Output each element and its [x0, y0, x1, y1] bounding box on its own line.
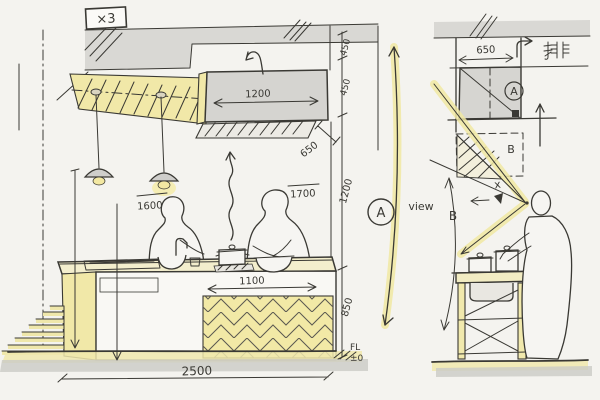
view-label: view	[408, 200, 433, 213]
zone-a-label: A	[510, 85, 518, 98]
dim-person-back-height: 1600	[137, 200, 163, 212]
tag-label: ×3	[96, 12, 116, 28]
sketch-canvas: ×3 1200 650	[0, 0, 600, 400]
slatted-steps	[2, 306, 64, 356]
height-tag: B	[449, 209, 457, 223]
dimension-chain: 450 450 1200 850	[338, 31, 355, 359]
lamp-canopy-icon	[91, 89, 101, 95]
range-hood: 1200 650	[196, 52, 340, 160]
zone-b-label: B	[507, 143, 515, 156]
detail-tag: ×3	[86, 7, 127, 29]
blocked-mark: x	[493, 178, 502, 192]
dim-hood: 450	[339, 78, 353, 97]
wood-ceiling-panel	[70, 74, 206, 124]
exhaust-kanji	[544, 42, 569, 59]
dim-hood-width: 1200	[245, 89, 271, 101]
dim-overall-width: 2500	[181, 363, 212, 378]
section-hood-depth-dim: 650	[459, 45, 513, 64]
lamp-shade-icon	[150, 173, 178, 181]
floor	[432, 360, 592, 377]
exhaust-direction	[517, 37, 569, 59]
turn-right-arrow-icon	[517, 37, 532, 57]
dim-section-hood-depth: 650	[476, 45, 496, 57]
dim-hood-depth: 650	[299, 140, 321, 160]
dim-mid: 1200	[338, 178, 355, 205]
herringbone-panel	[203, 296, 333, 358]
steam-arrow-icon	[226, 152, 235, 240]
floor-label: FL	[350, 343, 360, 353]
lamp-shade-icon	[85, 169, 113, 177]
wall-lines	[330, 26, 378, 262]
section-b-view: 650 A B	[368, 14, 592, 377]
updraft-arrow-icon	[536, 104, 544, 146]
height-b-arc: B	[441, 178, 457, 330]
pot-icon	[496, 250, 518, 271]
ceiling	[434, 20, 590, 38]
view-tag: A	[377, 206, 386, 221]
head	[532, 191, 551, 215]
dim-person-front-height: 1700	[290, 188, 316, 200]
elevation-a-view: ×3 1200 650	[0, 7, 378, 382]
kitchen-sketch: ×3 1200 650	[0, 0, 600, 400]
dim-island-width: 1100	[239, 276, 265, 288]
eye-icon	[494, 193, 503, 204]
eye-level-arrow-icon	[471, 197, 489, 205]
floor-level: ±0	[350, 354, 364, 364]
sink-basin	[470, 283, 513, 301]
pots-on-cart	[467, 246, 520, 272]
